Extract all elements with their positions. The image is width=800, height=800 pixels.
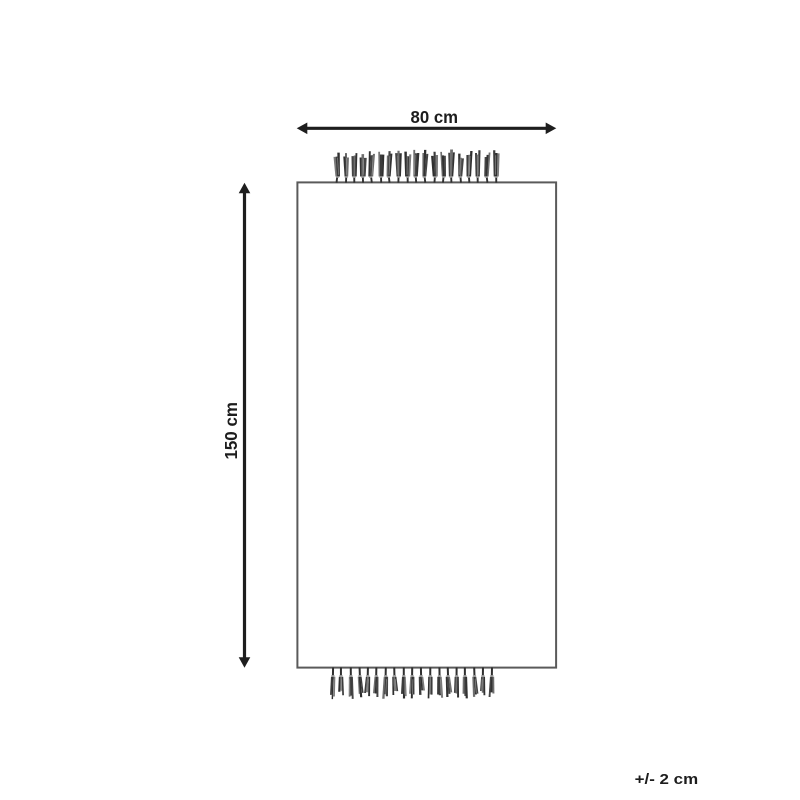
svg-text:150 cm: 150 cm [221,402,241,460]
svg-text:+/- 2 cm: +/- 2 cm [635,772,699,788]
svg-text:80 cm: 80 cm [411,107,459,127]
